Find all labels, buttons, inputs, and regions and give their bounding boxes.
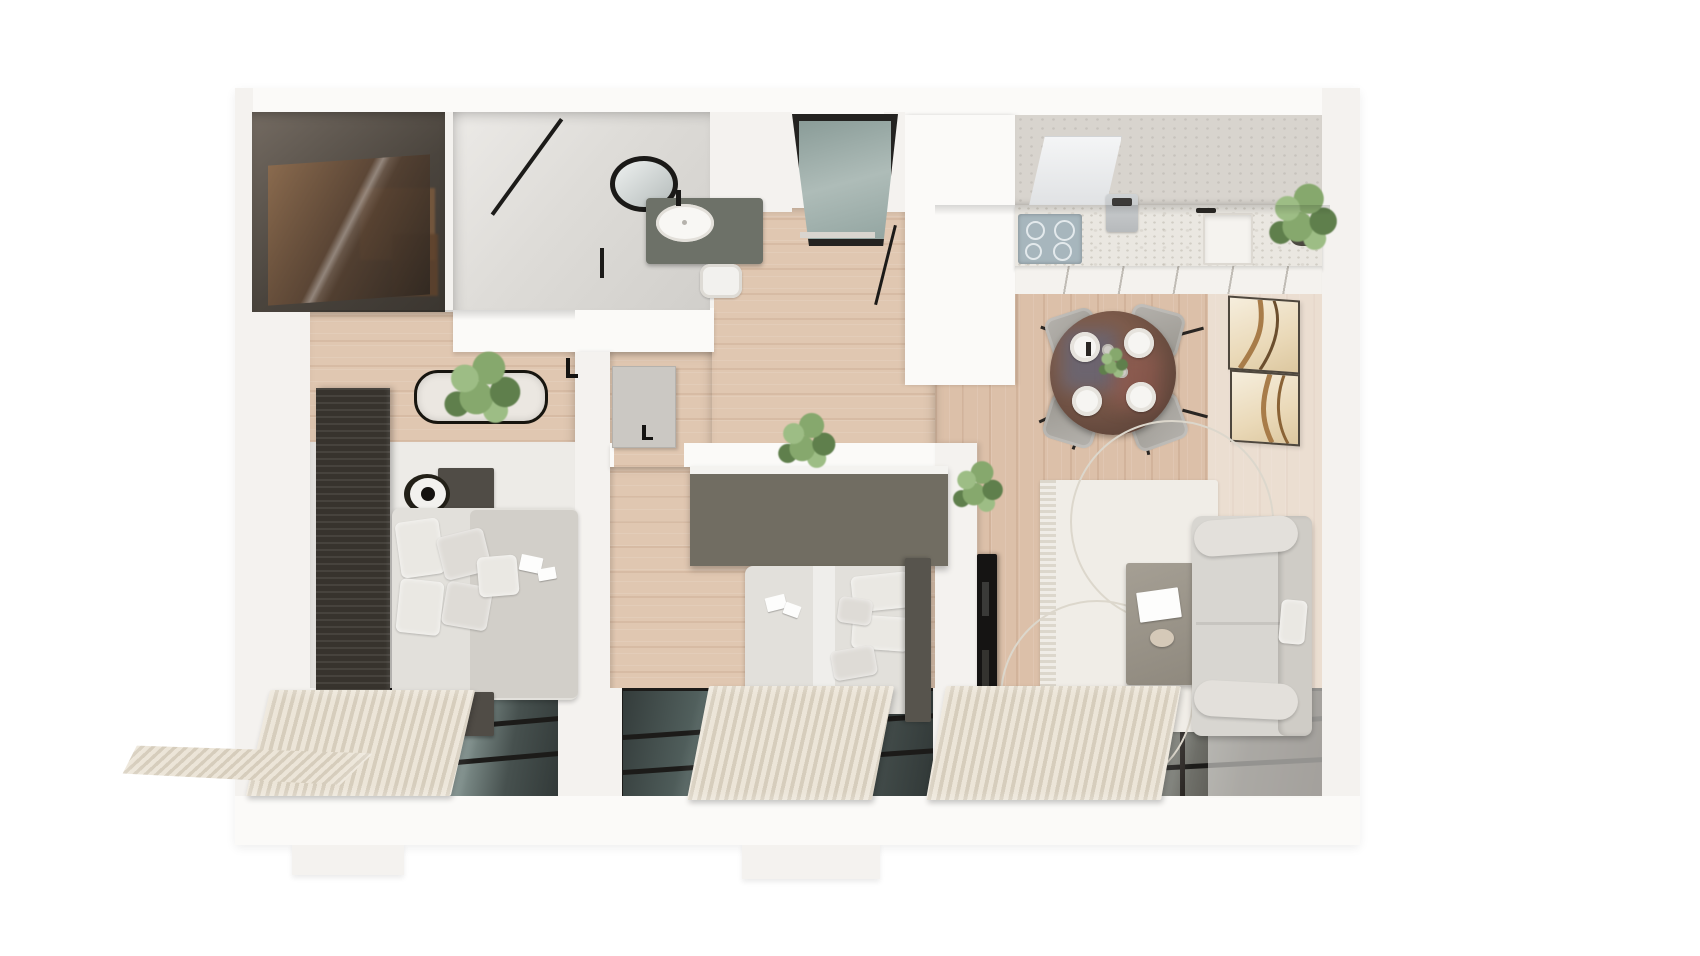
burner [1025, 243, 1042, 260]
pillow [395, 578, 444, 636]
sofa-seat-split [1196, 622, 1284, 625]
shower-door-handle [600, 248, 604, 278]
bedroom2-door-panel [612, 366, 676, 448]
wall-shadow [935, 205, 1330, 215]
bedroom2-wardrobe [690, 466, 948, 566]
bedroom2-headboard [905, 558, 931, 722]
living-plant [948, 458, 1010, 516]
wall-art-frame [1230, 370, 1300, 447]
tv-reflection [982, 582, 989, 616]
kitchen-cabinet-fronts [1015, 266, 1322, 294]
bottom-wall-tab [742, 843, 880, 879]
door-handle [642, 437, 653, 440]
wall-art-frame [1228, 295, 1300, 374]
pillow [830, 644, 879, 681]
place-setting-plate [1072, 386, 1102, 416]
bedroom1-bed [392, 508, 578, 700]
burner [1026, 221, 1045, 240]
sofa-armrest [1193, 514, 1299, 557]
pepper-mill [1086, 342, 1091, 356]
tv-reflection [982, 650, 989, 690]
entrance-door [792, 114, 898, 246]
closet-room [252, 112, 445, 312]
bedroom1-slat-wall [316, 388, 390, 722]
living-curtain [926, 686, 1181, 800]
entry-side-wall [714, 112, 792, 212]
bottom-outer-wall [235, 796, 1360, 845]
closet-glass-door [268, 154, 430, 305]
art-strokes [1232, 372, 1298, 445]
bedroom2-plant [772, 410, 844, 472]
bedroom2-curtain [687, 686, 894, 800]
magazine [782, 602, 801, 619]
bathroom-faucet [676, 190, 681, 206]
left-outer-wall [235, 88, 253, 845]
top-outer-wall [235, 88, 1360, 115]
table-centerpiece-plant [1096, 346, 1132, 380]
wall-shadow [310, 310, 575, 320]
sofa-armrest [1193, 679, 1299, 720]
sink-drain [682, 220, 687, 225]
bedroom1-plant [436, 348, 532, 428]
door-threshold [800, 232, 875, 238]
bedside-lamp-hole [421, 487, 435, 501]
bathroom-sink [656, 204, 714, 242]
book [1136, 587, 1182, 623]
burner [1053, 242, 1072, 261]
bedroom1-door-handle [566, 374, 578, 378]
kitchen-plant [1262, 180, 1347, 255]
floor-plan-stage [0, 0, 1700, 956]
coffee-table [1126, 563, 1194, 685]
bottom-wall-tab [292, 843, 404, 875]
kitchen-sink [1203, 213, 1253, 265]
place-setting-plate [1126, 382, 1156, 412]
burner [1054, 220, 1075, 241]
window-pier [558, 688, 622, 800]
pillow [476, 554, 519, 597]
toilet [700, 264, 742, 298]
kitchen-hall-wall [905, 115, 1015, 385]
induction-hob [1018, 214, 1082, 264]
sofa [1192, 516, 1312, 736]
sofa-pillow [1278, 599, 1308, 645]
pillow [836, 596, 873, 626]
decor-stone [1150, 629, 1174, 647]
art-strokes [1230, 298, 1298, 373]
